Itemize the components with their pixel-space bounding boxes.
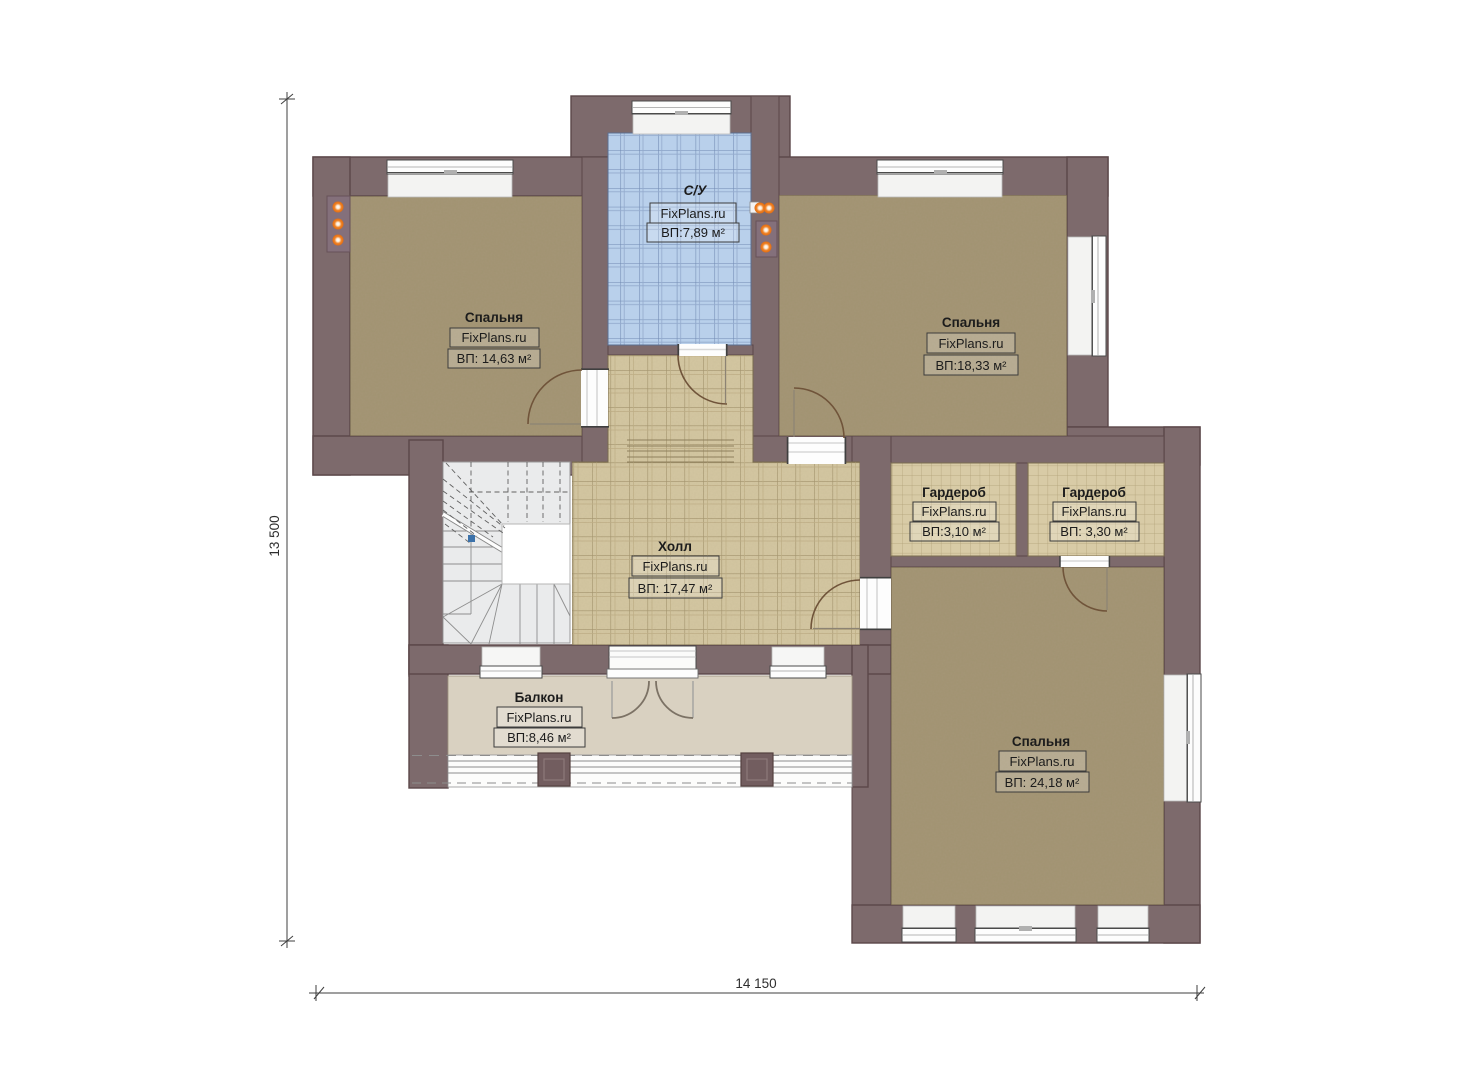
svg-text:С/У: С/У xyxy=(684,183,708,198)
svg-text:ВП: 14,63 м²: ВП: 14,63 м² xyxy=(457,351,532,366)
svg-text:Балкон: Балкон xyxy=(515,690,564,705)
svg-text:FixPlans.ru: FixPlans.ru xyxy=(642,559,707,574)
svg-text:ВП:7,89 м²: ВП:7,89 м² xyxy=(661,225,725,240)
svg-text:Спальня: Спальня xyxy=(465,310,523,325)
svg-text:ВП:3,10 м²: ВП:3,10 м² xyxy=(922,524,986,539)
svg-text:FixPlans.ru: FixPlans.ru xyxy=(938,336,1003,351)
svg-text:ВП: 24,18 м²: ВП: 24,18 м² xyxy=(1005,775,1080,790)
svg-text:ВП: 3,30 м²: ВП: 3,30 м² xyxy=(1060,524,1128,539)
svg-text:FixPlans.ru: FixPlans.ru xyxy=(1061,504,1126,519)
svg-text:Гардероб: Гардероб xyxy=(1062,485,1126,500)
svg-text:14 150: 14 150 xyxy=(735,976,776,991)
svg-text:Спальня: Спальня xyxy=(1012,734,1070,749)
svg-text:FixPlans.ru: FixPlans.ru xyxy=(1009,754,1074,769)
svg-text:Спальня: Спальня xyxy=(942,315,1000,330)
svg-text:ВП:18,33 м²: ВП:18,33 м² xyxy=(935,358,1007,373)
svg-text:FixPlans.ru: FixPlans.ru xyxy=(461,330,526,345)
svg-text:13 500: 13 500 xyxy=(267,515,282,556)
svg-text:FixPlans.ru: FixPlans.ru xyxy=(506,710,571,725)
svg-text:ВП: 17,47 м²: ВП: 17,47 м² xyxy=(638,581,713,596)
svg-text:FixPlans.ru: FixPlans.ru xyxy=(660,206,725,221)
svg-text:Холл: Холл xyxy=(658,539,692,554)
svg-text:ВП:8,46 м²: ВП:8,46 м² xyxy=(507,730,571,745)
svg-text:Гардероб: Гардероб xyxy=(922,485,986,500)
svg-text:FixPlans.ru: FixPlans.ru xyxy=(921,504,986,519)
